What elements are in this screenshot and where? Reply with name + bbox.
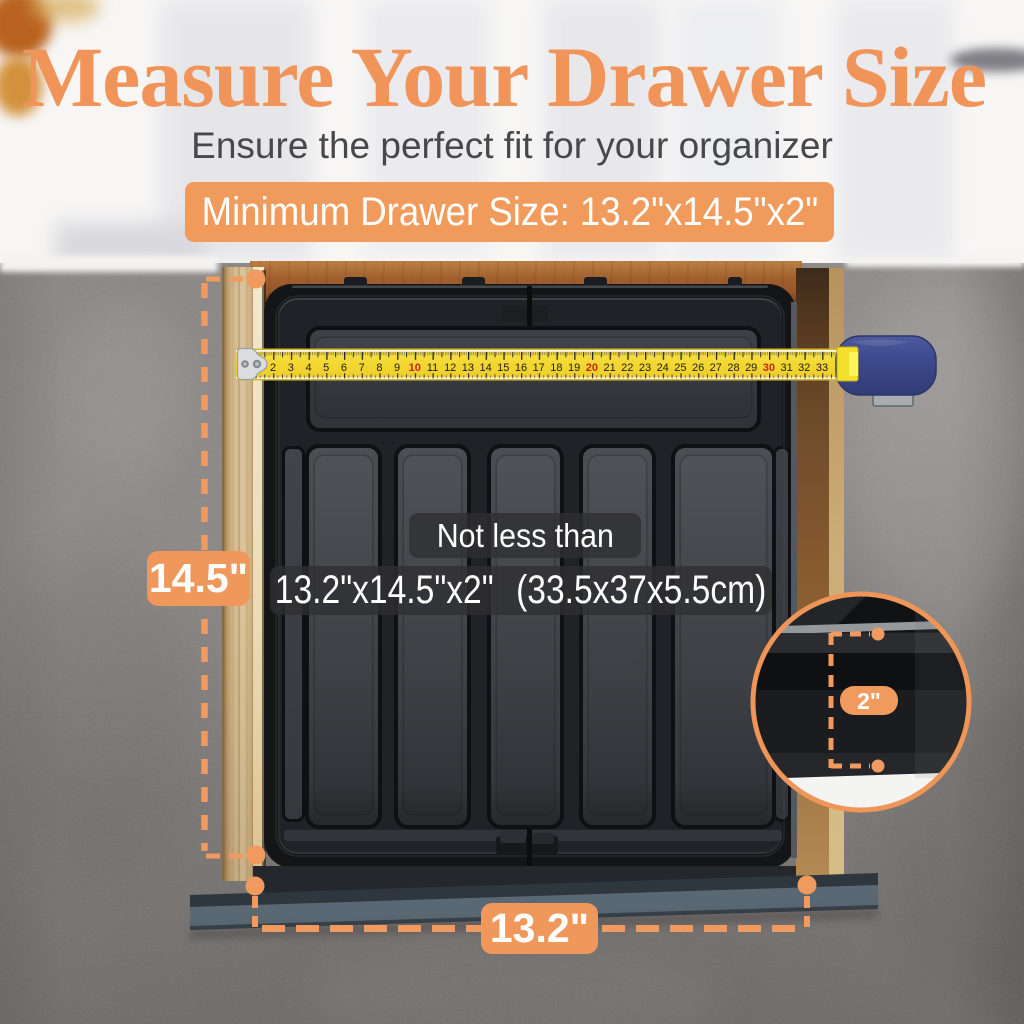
- svg-text:26: 26: [692, 362, 704, 374]
- svg-text:16: 16: [515, 362, 527, 374]
- svg-text:11: 11: [427, 362, 438, 374]
- svg-text:15: 15: [497, 362, 509, 374]
- svg-text:2: 2: [270, 362, 276, 374]
- svg-text:30: 30: [763, 362, 775, 374]
- svg-text:33: 33: [816, 362, 828, 374]
- svg-text:20: 20: [586, 362, 598, 374]
- svg-text:29: 29: [745, 362, 757, 374]
- svg-text:18: 18: [550, 362, 562, 374]
- svg-text:28: 28: [727, 362, 739, 374]
- svg-text:31: 31: [780, 362, 792, 374]
- svg-text:19: 19: [568, 362, 580, 374]
- svg-text:4: 4: [305, 362, 311, 374]
- svg-text:5: 5: [323, 362, 329, 374]
- svg-text:22: 22: [621, 362, 633, 374]
- svg-text:8: 8: [376, 362, 382, 374]
- svg-text:17: 17: [533, 362, 545, 374]
- svg-text:27: 27: [710, 362, 722, 374]
- svg-text:7: 7: [359, 362, 365, 374]
- svg-text:6: 6: [341, 362, 347, 374]
- svg-text:13: 13: [462, 362, 474, 374]
- svg-text:25: 25: [674, 362, 686, 374]
- svg-text:23: 23: [639, 362, 651, 374]
- svg-text:21: 21: [603, 362, 615, 374]
- svg-text:24: 24: [657, 362, 669, 374]
- svg-text:32: 32: [798, 362, 810, 374]
- svg-text:10: 10: [409, 362, 421, 374]
- svg-text:12: 12: [444, 362, 456, 374]
- svg-text:2": 2": [857, 688, 881, 714]
- svg-text:3: 3: [288, 362, 294, 374]
- svg-text:14: 14: [479, 362, 491, 374]
- svg-text:9: 9: [394, 362, 400, 374]
